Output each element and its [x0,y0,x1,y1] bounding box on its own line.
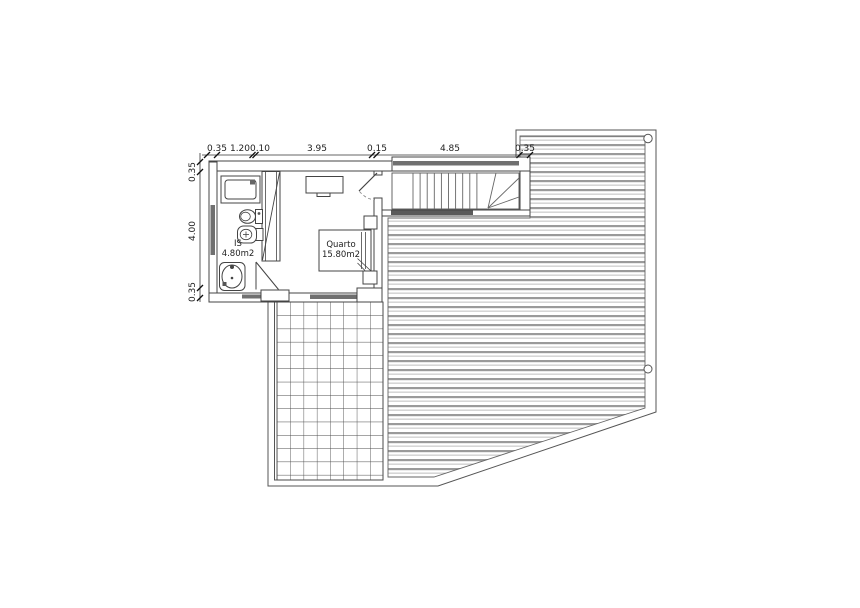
dim-top-0: 0.35 [207,144,227,154]
terrace-tiles [277,302,383,480]
bedroom-door [359,173,377,200]
desk-knob [317,193,330,197]
dim-left-0: 0.35 [188,162,198,182]
window-top [393,161,519,166]
floor-plan-drawing: IS 4.80m2 Quarto 15.80m2 0.35 1.20 [0,0,860,608]
staircase [392,173,519,209]
dimension-labels-top: 0.35 1.20 0.10 3.95 0.15 4.85 0.35 [207,144,535,154]
deck-corner-marker [644,134,652,142]
window-bottom-1 [242,295,261,299]
room-label-quarto-name: Quarto [326,240,355,250]
desk [306,177,343,194]
nightstand-top [364,216,377,229]
deck-edge-marker [644,365,652,373]
stair-winders [488,173,519,208]
dim-top-2: 0.10 [250,144,270,154]
dim-left-2: 0.35 [188,282,198,302]
dim-top-4: 0.15 [367,144,387,154]
bathtub [221,176,260,203]
floor-plan-page: IS 4.80m2 Quarto 15.80m2 0.35 1.20 [0,0,860,608]
terrace-area [275,302,384,480]
dim-top-1: 1.20 [230,144,250,154]
door-threshold [261,290,289,301]
dim-top-5: 4.85 [440,144,460,154]
window-bottom-2 [310,295,360,300]
wardrobe [262,172,280,262]
window-left [211,205,216,255]
room-label-is-area: 4.80m2 [222,249,255,259]
dim-top-6: 0.35 [515,144,535,154]
sink [220,263,246,291]
stair-treads [413,173,477,209]
bathroom-door [256,262,279,290]
nightstand-bottom [363,271,377,284]
hall-window-band [391,211,473,216]
bedroom-furniture [262,172,377,285]
wall-right [374,198,382,302]
room-label-is-name: IS [234,239,242,249]
wall-hall-right [520,171,530,216]
toilet [240,210,263,224]
wall-top-left [209,161,392,171]
room-label-quarto-area: 15.80m2 [322,250,360,260]
dim-left-1: 4.00 [188,221,198,241]
dim-top-3: 3.95 [307,144,327,154]
deck-hatch [388,136,645,477]
wall-pier [357,288,382,302]
dimension-labels-left: 0.35 4.00 0.35 [188,162,198,302]
